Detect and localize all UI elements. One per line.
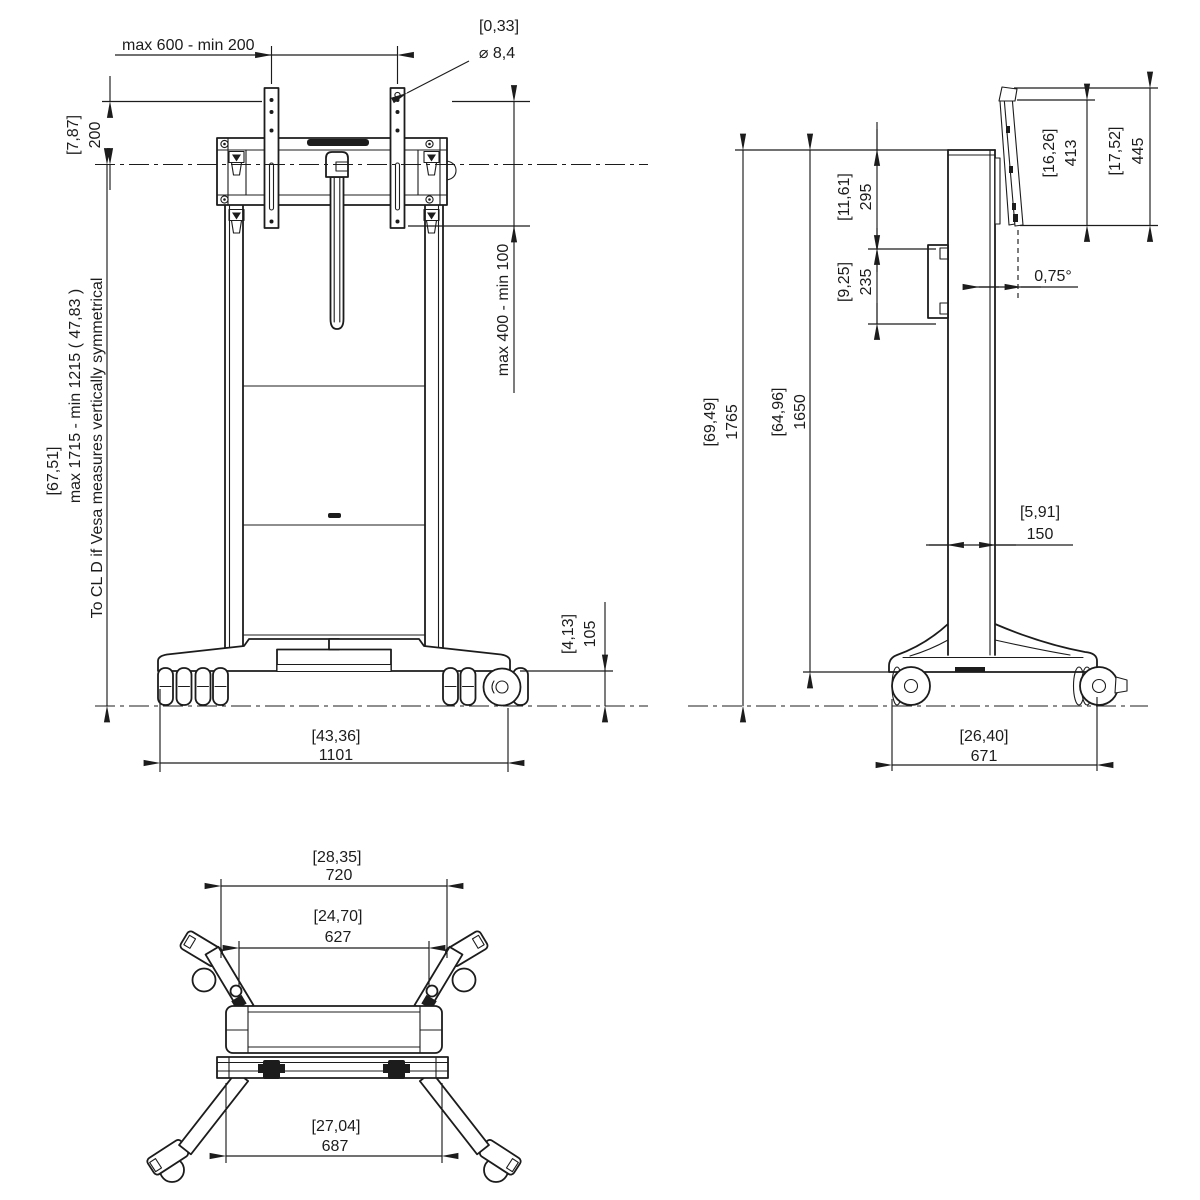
dim-445-inch: [17,52]: [1107, 127, 1124, 176]
side-view: [69,49] 1765 [64,96] 1650 [11,61] 295 [9…: [688, 87, 1158, 771]
dim-1650-inch: [64,96]: [770, 388, 787, 437]
dim-1765-mm: 1765: [724, 404, 741, 440]
drawing-canvas: max 600 - min 200 [0,33] ⌀ 8,4 [7,87] 20…: [0, 0, 1200, 1200]
front-dimensions: max 600 - min 200 [0,33] ⌀ 8,4 [7,87] 20…: [45, 18, 613, 772]
plan-caster-bottom-right: [420, 1064, 522, 1182]
technical-drawing-page: max 600 - min 200 [0,33] ⌀ 8,4 [7,87] 20…: [0, 0, 1200, 1200]
dim-1101-inch: [43,36]: [312, 728, 361, 745]
plan-caster-top-left: [179, 930, 253, 1013]
dim-105-inch: [4,13]: [560, 614, 577, 654]
plan-body: [226, 1006, 442, 1053]
dim-687-inch: [27,04]: [312, 1118, 361, 1135]
dim-1650-mm: 1650: [792, 394, 809, 430]
dim-671-inch: [26,40]: [960, 728, 1009, 745]
dim-vesa-height: max 400 - min 100: [495, 244, 512, 377]
plan-caster-top-right: [415, 930, 489, 1013]
dim-445-mm: 445: [1130, 138, 1147, 165]
dim-height-inch: [67,51]: [45, 447, 62, 496]
dim-height-mm: max 1715 - min 1215 ( 47,83 ): [67, 289, 84, 503]
dim-1765-inch: [69,49]: [702, 398, 719, 447]
dim-1101-mm: 1101: [319, 747, 354, 764]
front-view: max 600 - min 200 [0,33] ⌀ 8,4 [7,87] 20…: [45, 18, 648, 772]
dim-hole-bracket: [0,33]: [479, 18, 519, 35]
dim-720-mm: 720: [326, 867, 353, 884]
side-collar-box: [928, 245, 948, 318]
dim-235-inch: [9,25]: [836, 262, 853, 302]
dim-413-inch: [16,26]: [1041, 129, 1058, 178]
dim-150-mm: 150: [1027, 526, 1054, 543]
front-casters: [158, 668, 528, 706]
dim-vesa-width: max 600 - min 200: [122, 37, 255, 54]
dim-671-mm: 671: [971, 748, 998, 765]
dim-720-inch: [28,35]: [313, 849, 362, 866]
dim-hole-diameter: ⌀ 8,4: [479, 45, 515, 62]
dim-200-mm: 200: [87, 122, 104, 149]
dim-tilt-angle: 0,75°: [1034, 268, 1072, 285]
dim-687-mm: 687: [322, 1138, 349, 1155]
dim-height-note: To CL D if Vesa measures vertically symm…: [89, 278, 106, 619]
dim-105-mm: 105: [582, 621, 599, 648]
dim-627-mm: 627: [325, 929, 352, 946]
plan-crossbar: [217, 1057, 448, 1079]
front-base: [158, 639, 510, 672]
dim-295-inch: [11,61]: [836, 173, 853, 221]
plan-caster-bottom-left: [146, 1064, 248, 1182]
dim-150-inch: [5,91]: [1020, 504, 1060, 521]
dim-413-mm: 413: [1063, 140, 1080, 167]
dim-627-inch: [24,70]: [314, 908, 363, 925]
dim-200-inch: [7,87]: [65, 115, 82, 155]
side-column: [928, 150, 995, 655]
dim-235-mm: 235: [858, 269, 875, 296]
side-mount: [995, 87, 1023, 226]
dim-295-mm: 295: [858, 184, 875, 211]
plan-view: [28,35] 720 [24,70] 627 [27,04] 687: [146, 849, 522, 1182]
